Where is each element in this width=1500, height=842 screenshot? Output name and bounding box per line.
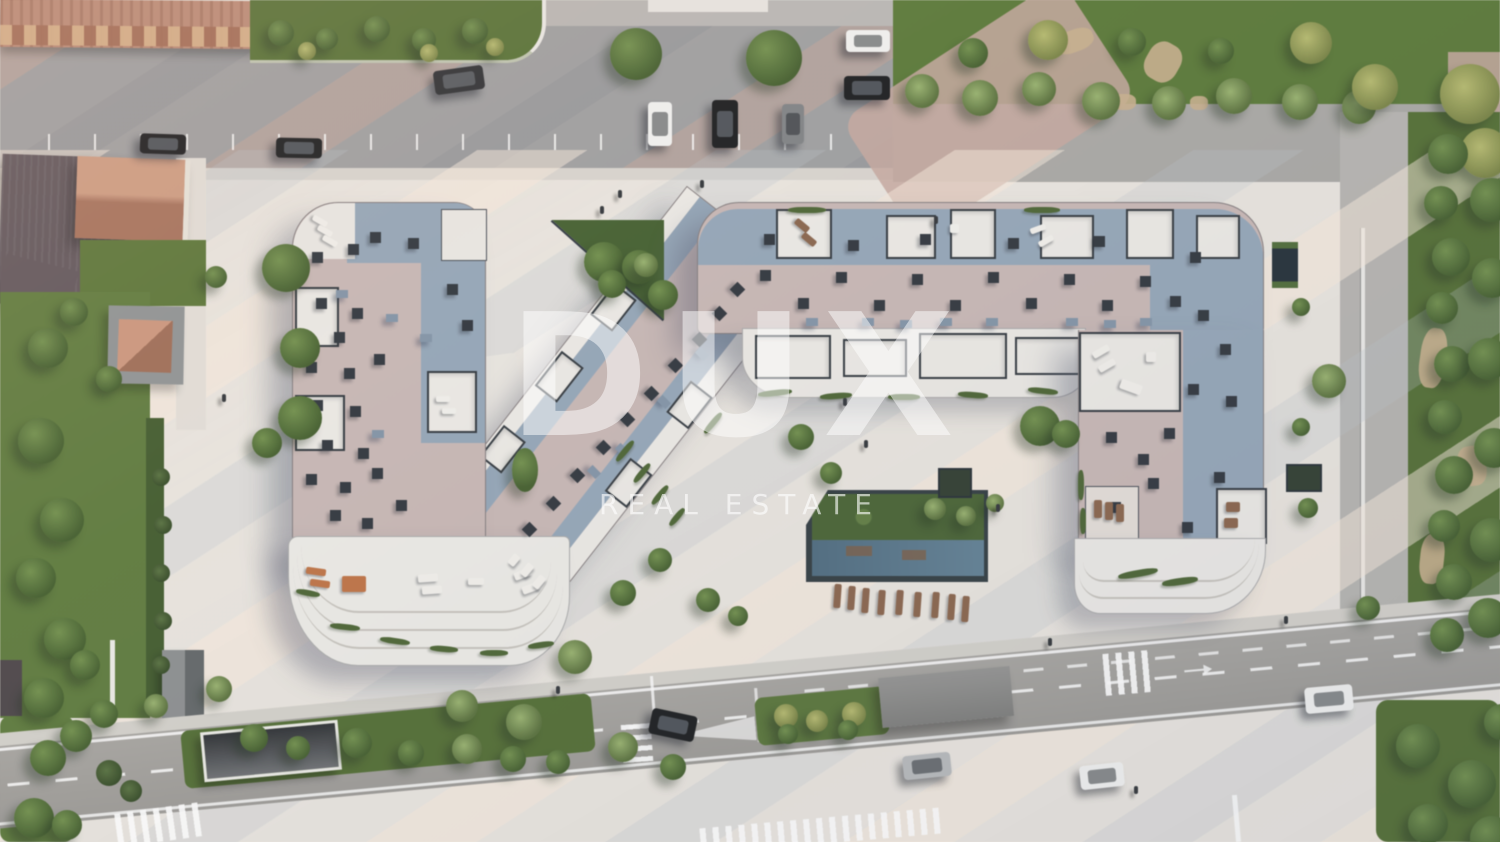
roof-patio <box>1015 337 1081 375</box>
pool-garden <box>812 494 984 540</box>
pedestrian <box>222 394 226 402</box>
pool-water <box>812 540 984 576</box>
hedge-planting <box>650 484 670 506</box>
tree <box>1298 498 1318 518</box>
tree <box>820 462 842 484</box>
building-top-wing <box>697 202 1264 334</box>
tree <box>252 428 282 458</box>
tree <box>788 424 814 450</box>
tree <box>648 548 672 572</box>
terrace-furniture <box>931 592 940 618</box>
top-wing-inner-terraces <box>742 328 1086 398</box>
neighbor-roof-fragment-1 <box>0 660 22 716</box>
roof-patio <box>295 395 345 451</box>
car <box>1079 762 1125 790</box>
pedestrian <box>600 206 604 214</box>
tree <box>558 640 592 674</box>
hedge-planting <box>668 507 687 528</box>
left-slab-curved-terraces <box>288 536 570 666</box>
right-green-strip <box>1408 112 1500 672</box>
right-boundary-line <box>1360 228 1365 648</box>
tree <box>1292 298 1310 316</box>
pedestrian <box>618 190 622 198</box>
roof-patio <box>843 339 907 377</box>
rooftop-terrace-loungers <box>1085 486 1139 544</box>
terrace-furniture <box>913 592 922 617</box>
pool-planter <box>938 468 972 498</box>
plaza-planter-box <box>1286 464 1322 492</box>
terrace-tier <box>1083 539 1255 582</box>
right-wing-scallops <box>1074 538 1266 614</box>
roof-patio <box>295 287 339 347</box>
pedestrian <box>1134 786 1138 794</box>
terrace-furniture <box>833 584 842 608</box>
plaza-bench-planter <box>1272 242 1298 288</box>
terrace-furniture <box>847 586 856 610</box>
tree <box>696 588 720 612</box>
roof-patio <box>919 333 1007 379</box>
terrace-furniture <box>861 588 870 613</box>
tree <box>206 676 232 702</box>
pool-deck-plank <box>902 550 926 560</box>
neighbor-roof-salmon <box>75 156 191 242</box>
hedge-planting <box>702 411 723 435</box>
terrace-tier <box>301 537 551 613</box>
pedestrian <box>864 440 868 448</box>
tree <box>986 494 1004 512</box>
tree <box>205 266 227 288</box>
tree <box>1052 420 1080 448</box>
roof-patio <box>1196 215 1240 259</box>
terrace-furniture <box>895 590 904 615</box>
road-stop-line <box>1232 795 1241 842</box>
roof-patio <box>950 209 996 259</box>
crosswalk-bottom-center <box>699 808 940 842</box>
grass-top-left <box>250 0 546 63</box>
car <box>902 752 952 781</box>
left-slab-terrace-topleft <box>293 203 355 259</box>
terracotta-roof-building <box>0 0 258 49</box>
pool-deck-plank <box>846 546 872 556</box>
tree <box>610 580 636 606</box>
terrace-furniture <box>947 594 956 620</box>
right-walkway-strip <box>1340 112 1412 660</box>
roof-patio <box>427 371 477 433</box>
bottom-right-green <box>1376 700 1500 842</box>
lot-top-structure <box>648 0 768 12</box>
building-left-slab <box>292 202 486 564</box>
scene <box>0 0 1500 842</box>
terrace-furniture <box>877 590 886 615</box>
terrace-furniture <box>961 596 970 622</box>
rooftop-patio-lounge <box>1079 332 1181 412</box>
terracotta-roof-check-row <box>0 25 258 47</box>
building-right-wing <box>1078 330 1264 543</box>
pedestrian <box>700 180 704 188</box>
aerial-site-render: DUX REAL ESTATE <box>0 0 1500 842</box>
small-house-salmon-roof <box>117 319 173 373</box>
crosswalk-driveway <box>621 723 654 763</box>
tree <box>1020 406 1060 446</box>
rooftop-patio-dining <box>1216 488 1267 544</box>
pedestrian <box>843 398 847 406</box>
tree <box>1292 418 1310 436</box>
roof-patio <box>1040 215 1094 259</box>
roof-patio <box>755 335 831 379</box>
tree <box>728 606 748 626</box>
pool-area <box>806 490 988 582</box>
pedestrian <box>996 504 1000 512</box>
roof-patio <box>776 209 832 259</box>
left-slab-terrace-topright <box>441 209 487 261</box>
roof-patio <box>1126 209 1174 259</box>
crosswalk-road-right <box>1102 650 1151 696</box>
roof-patio <box>886 215 936 259</box>
boundary-wall-vertical <box>110 640 115 732</box>
